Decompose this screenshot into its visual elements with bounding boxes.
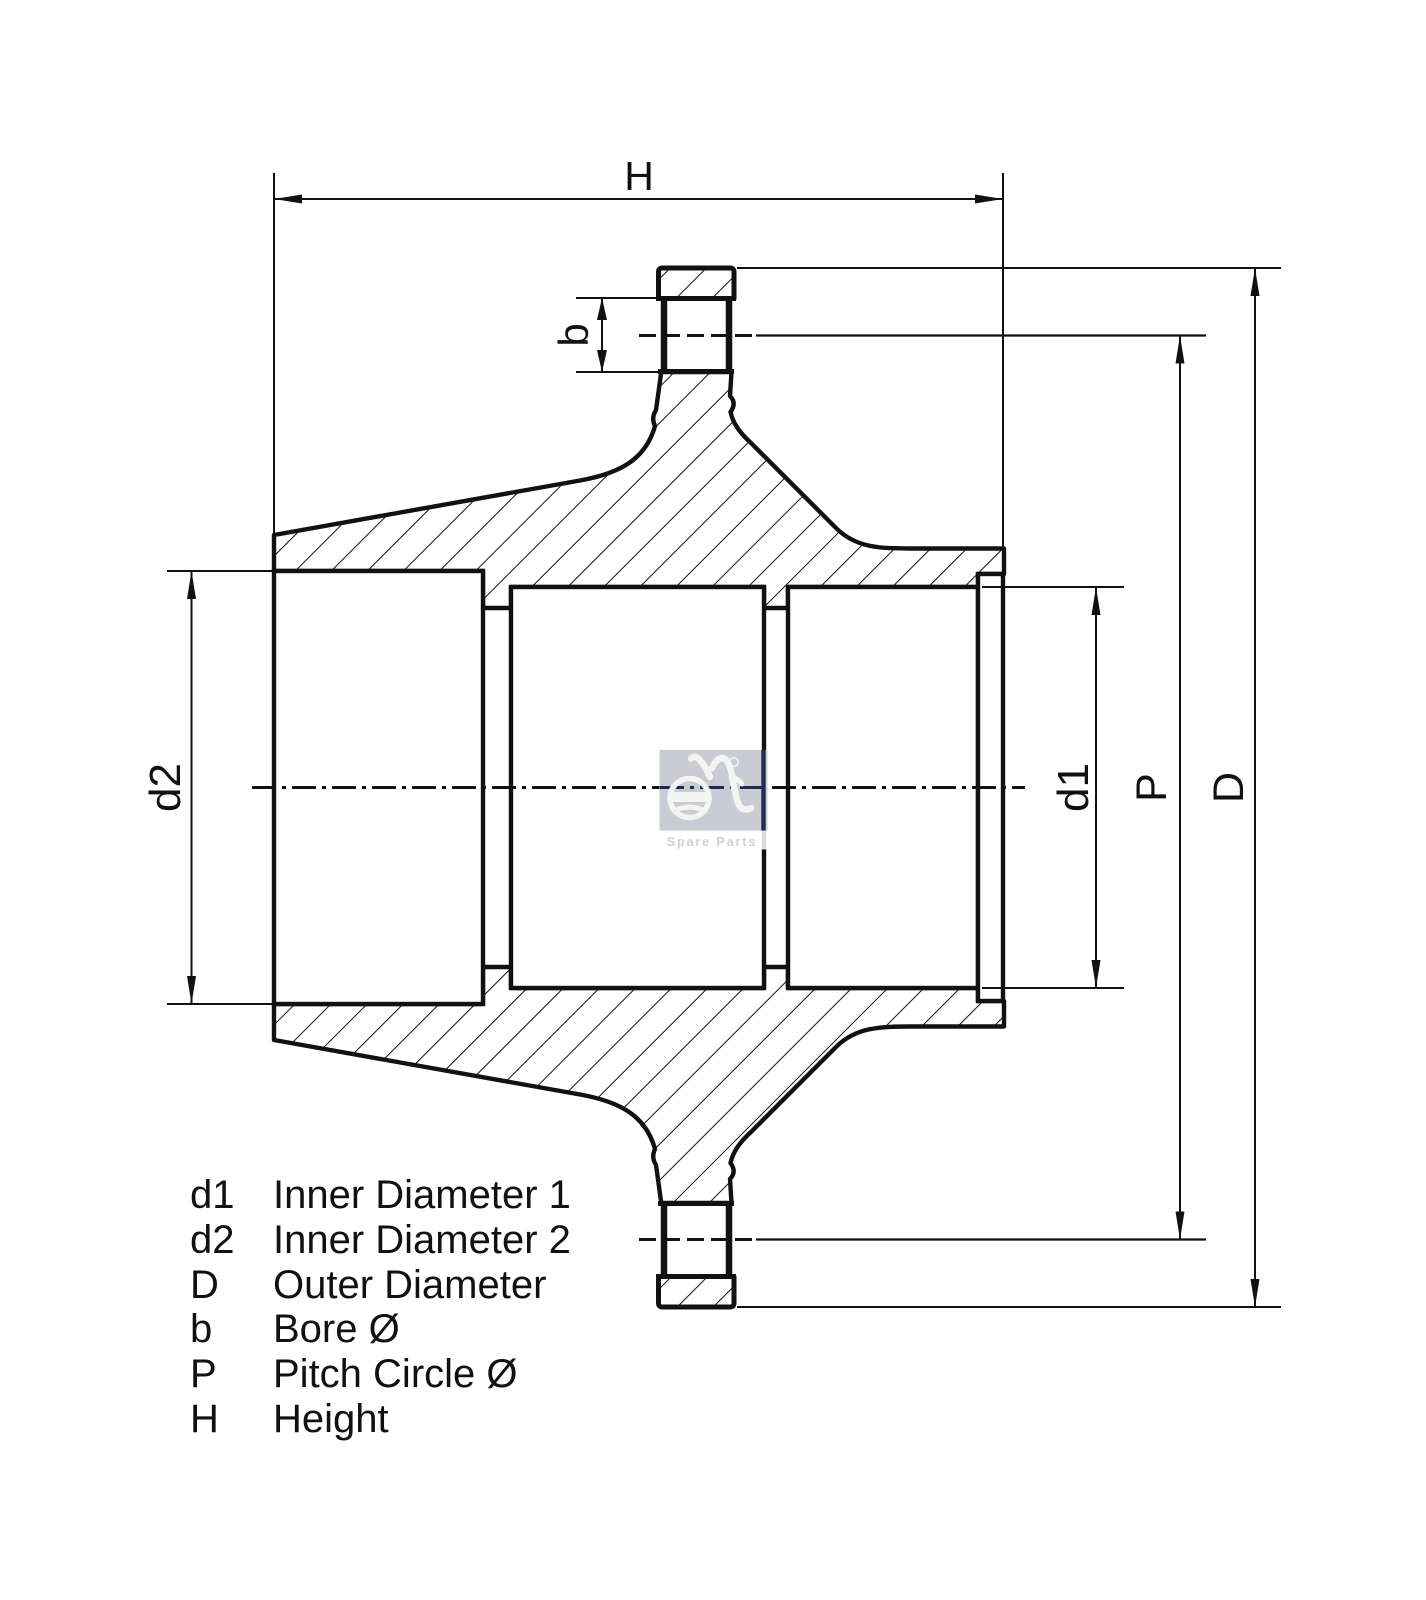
svg-text:b: b [550, 323, 597, 346]
svg-text:d1: d1 [1049, 763, 1098, 812]
svg-text:b: b [190, 1307, 212, 1351]
svg-text:D: D [1205, 772, 1253, 803]
svg-text:Bore Ø: Bore Ø [273, 1307, 400, 1351]
svg-text:D: D [190, 1263, 219, 1307]
svg-text:H: H [624, 153, 654, 199]
svg-text:d2: d2 [190, 1218, 235, 1262]
svg-text:P: P [190, 1352, 217, 1396]
svg-text:Inner Diameter 1: Inner Diameter 1 [273, 1173, 571, 1217]
svg-text:Inner Diameter 2: Inner Diameter 2 [273, 1218, 571, 1262]
svg-text:H: H [190, 1397, 219, 1441]
svg-text:d1: d1 [190, 1173, 235, 1217]
svg-text:Pitch Circle Ø: Pitch Circle Ø [273, 1352, 518, 1396]
svg-text:Outer Diameter: Outer Diameter [273, 1263, 546, 1307]
svg-text:Spare Parts: Spare Parts [667, 835, 757, 849]
svg-text:P: P [1128, 773, 1176, 802]
svg-text:d2: d2 [141, 763, 190, 812]
svg-text:Height: Height [273, 1397, 389, 1441]
